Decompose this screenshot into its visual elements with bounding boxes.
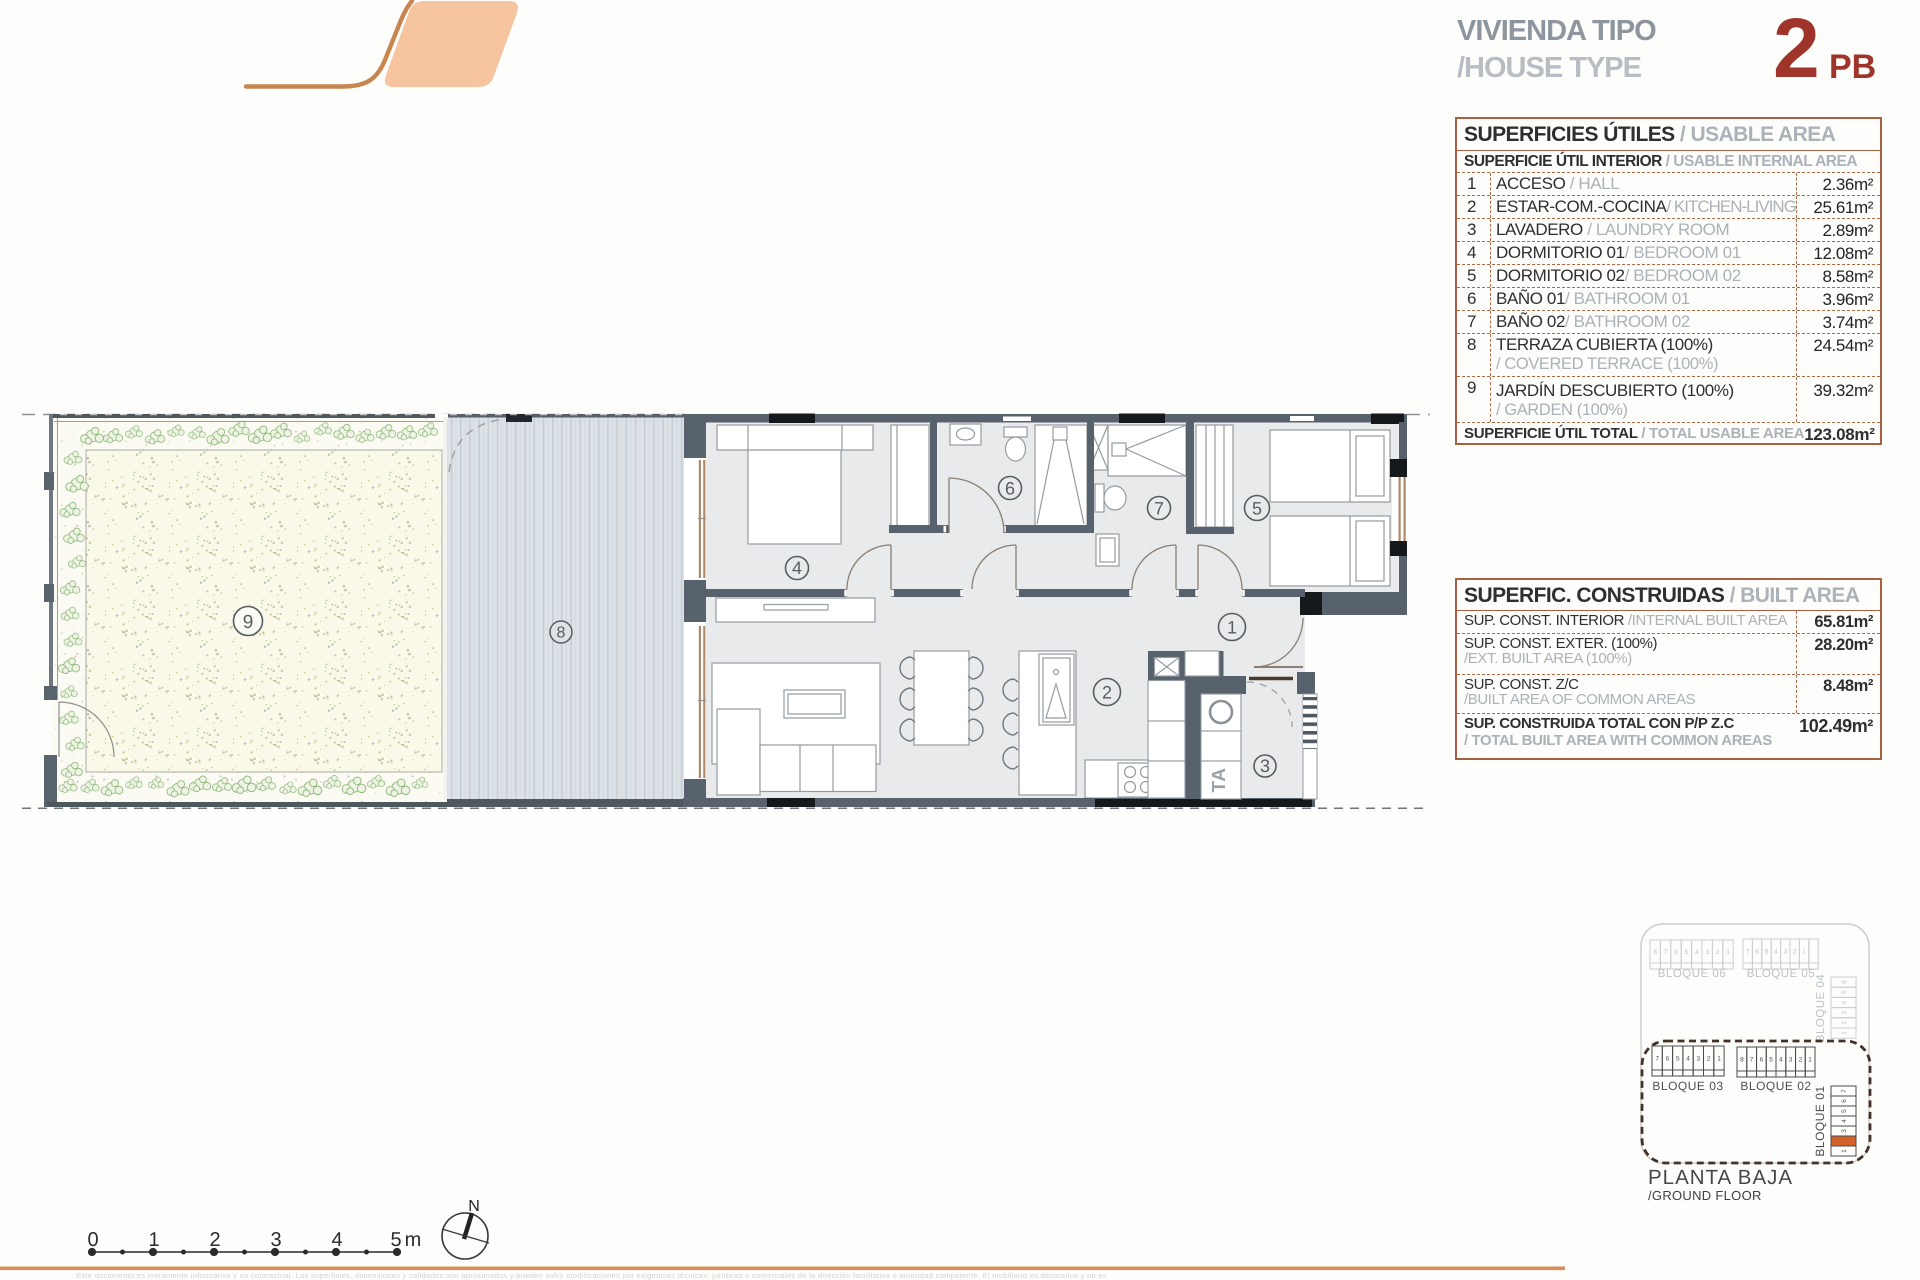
svg-text:8: 8 xyxy=(1740,1057,1744,1064)
svg-text:PLANTA BAJA: PLANTA BAJA xyxy=(1648,1166,1793,1189)
svg-text:1: 1 xyxy=(148,1229,159,1251)
svg-text:1: 1 xyxy=(1802,949,1806,956)
svg-text:5: 5 xyxy=(1769,1057,1773,1064)
svg-text:5: 5 xyxy=(390,1229,401,1251)
svg-text:BLOQUE 06: BLOQUE 06 xyxy=(1658,968,1726,980)
svg-text:7: 7 xyxy=(1655,1056,1659,1063)
svg-text:1: 1 xyxy=(1841,1149,1848,1153)
svg-text:5: 5 xyxy=(1841,1109,1848,1113)
svg-text:/GROUND FLOOR: /GROUND FLOOR xyxy=(1648,1188,1762,1203)
svg-text:3: 3 xyxy=(1705,949,1709,956)
svg-text:3: 3 xyxy=(1789,1057,1793,1064)
svg-text:2: 2 xyxy=(209,1229,220,1251)
svg-text:4: 4 xyxy=(1841,1119,1848,1123)
svg-text:4: 4 xyxy=(1686,1056,1690,1063)
svg-text:3: 3 xyxy=(270,1229,281,1251)
svg-text:6: 6 xyxy=(1841,980,1848,984)
svg-text:N: N xyxy=(468,1198,480,1215)
svg-text:4: 4 xyxy=(331,1229,342,1251)
svg-text:0: 0 xyxy=(87,1229,98,1251)
svg-text:BLOQUE 04: BLOQUE 04 xyxy=(1815,974,1827,1043)
svg-text:BLOQUE 02: BLOQUE 02 xyxy=(1740,1079,1811,1093)
svg-text:BLOQUE 03: BLOQUE 03 xyxy=(1652,1079,1723,1093)
svg-text:2: 2 xyxy=(1102,683,1112,703)
svg-text:2: 2 xyxy=(1799,1057,1803,1064)
svg-text:1: 1 xyxy=(1841,1031,1848,1035)
svg-text:9: 9 xyxy=(243,612,254,633)
svg-text:1: 1 xyxy=(1726,949,1730,956)
svg-text:2: 2 xyxy=(1707,1056,1711,1063)
svg-text:3: 3 xyxy=(1841,1011,1848,1015)
svg-text:5: 5 xyxy=(1676,1056,1680,1063)
svg-text:5: 5 xyxy=(1765,949,1769,956)
svg-text:2: 2 xyxy=(1841,1021,1848,1025)
svg-text:6: 6 xyxy=(1760,1057,1764,1064)
svg-text:7: 7 xyxy=(1664,949,1668,956)
svg-text:6: 6 xyxy=(1755,949,1759,956)
svg-text:7: 7 xyxy=(1154,499,1164,519)
svg-text:TA: TA xyxy=(1209,768,1230,793)
svg-text:6: 6 xyxy=(1674,949,1678,956)
svg-text:4: 4 xyxy=(1695,949,1699,956)
svg-text:2: 2 xyxy=(1716,949,1720,956)
svg-text:4: 4 xyxy=(1779,1057,1783,1064)
svg-text:1: 1 xyxy=(1227,618,1237,638)
svg-text:BLOQUE 01: BLOQUE 01 xyxy=(1813,1085,1827,1156)
svg-text:7: 7 xyxy=(1841,1089,1848,1093)
svg-text:6: 6 xyxy=(1666,1056,1670,1063)
svg-text:8: 8 xyxy=(1653,949,1657,956)
svg-text:5: 5 xyxy=(1685,949,1689,956)
svg-text:4: 4 xyxy=(1774,949,1778,956)
svg-text:4: 4 xyxy=(792,558,802,578)
svg-text:5: 5 xyxy=(1252,499,1262,519)
svg-text:m: m xyxy=(405,1229,422,1251)
svg-text:3: 3 xyxy=(1841,1129,1848,1133)
svg-text:6: 6 xyxy=(1841,1099,1848,1103)
svg-text:3: 3 xyxy=(1696,1056,1700,1063)
svg-text:1: 1 xyxy=(1808,1057,1812,1064)
svg-text:2: 2 xyxy=(1793,949,1797,956)
svg-text:7: 7 xyxy=(1746,949,1750,956)
svg-text:BLOQUE 05: BLOQUE 05 xyxy=(1747,968,1815,980)
svg-text:5: 5 xyxy=(1841,990,1848,994)
svg-text:1: 1 xyxy=(1717,1056,1721,1063)
svg-text:4: 4 xyxy=(1841,1000,1848,1004)
svg-text:7: 7 xyxy=(1750,1057,1754,1064)
svg-text:3: 3 xyxy=(1783,949,1787,956)
svg-text:3: 3 xyxy=(1260,756,1270,776)
svg-text:6: 6 xyxy=(1005,479,1015,499)
svg-text:8: 8 xyxy=(557,625,566,642)
